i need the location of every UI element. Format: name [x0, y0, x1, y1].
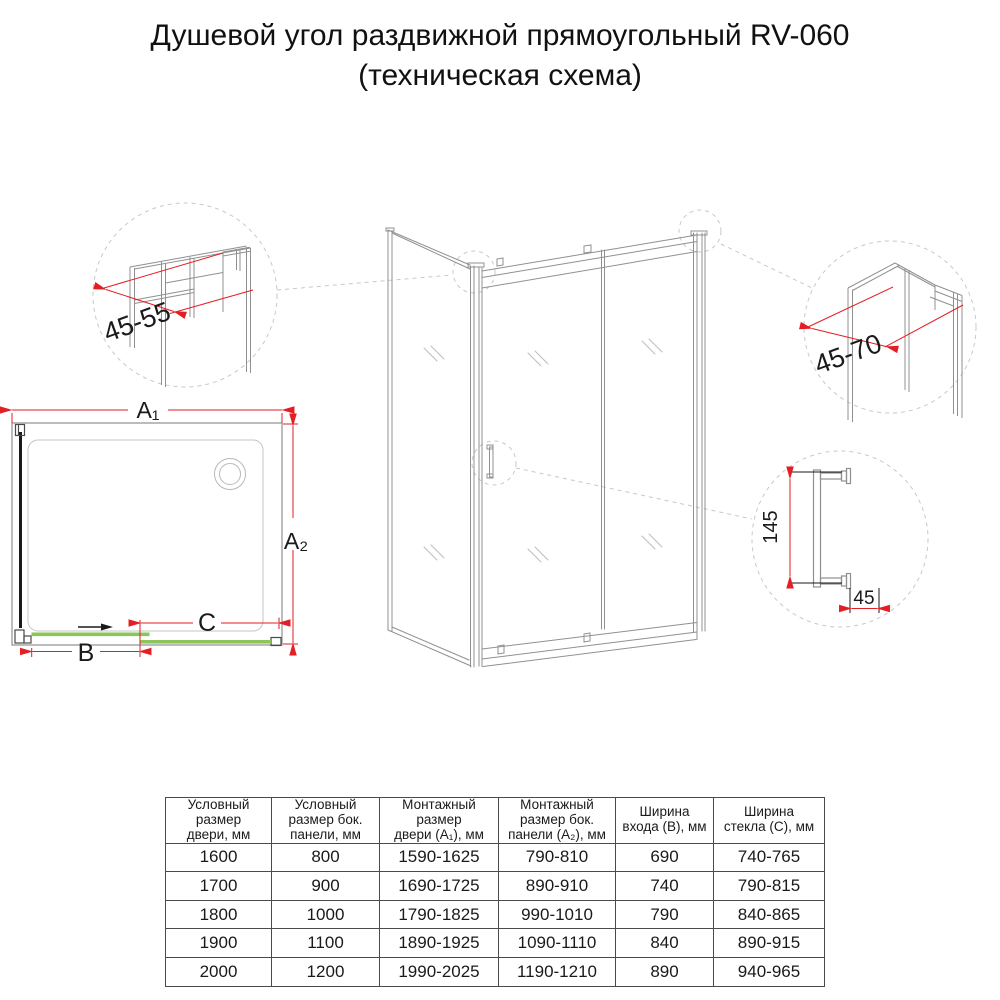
table-cell: 840-865 — [714, 900, 825, 929]
table-cell: 1990-2025 — [380, 957, 499, 986]
column-header-door-size: Условный размер двери, мм — [166, 798, 272, 844]
table-header-row: Условный размер двери, мм Условный разме… — [166, 798, 825, 844]
column-header-side-panel-size: Условный размер бок. панели, мм — [272, 798, 380, 844]
leader-handle — [516, 468, 752, 519]
dim-label-handle-height: 145 — [760, 510, 782, 543]
dim-label-c: C — [198, 609, 216, 637]
top-roller-1 — [497, 258, 503, 266]
table-cell: 1590-1625 — [380, 843, 499, 872]
leader-right-profile — [721, 244, 812, 288]
table-cell: 740 — [616, 872, 714, 901]
table-cell: 1800 — [166, 900, 272, 929]
table-cell: 1900 — [166, 929, 272, 958]
table-cell: 1200 — [272, 957, 380, 986]
table-cell: 690 — [616, 843, 714, 872]
bottom-roller-2 — [584, 633, 590, 642]
door-end-profile — [271, 638, 281, 646]
table-cell: 1600 — [166, 843, 272, 872]
plan-outer-wall — [12, 423, 282, 645]
top-roller-2 — [584, 245, 591, 253]
table-cell: 740-765 — [714, 843, 825, 872]
table-cell: 890-915 — [714, 929, 825, 958]
table-cell: 900 — [272, 872, 380, 901]
table-cell: 1100 — [272, 929, 380, 958]
wall-profile-bottom-foot — [24, 636, 31, 643]
table-row: 1700 900 1690-1725 890-910 740 790-815 — [166, 872, 825, 901]
drain-circle-inner — [220, 464, 241, 485]
table-row: 1600 800 1590-1625 790-810 690 740-765 — [166, 843, 825, 872]
table-row: 1800 1000 1790-1825 990-1010 790 840-865 — [166, 900, 825, 929]
left-profile-detail: 45-55 — [93, 203, 277, 387]
detail-circle-left — [93, 203, 277, 387]
handle-drawing — [814, 469, 851, 589]
leader-lines — [277, 210, 812, 519]
plan-dimensions — [12, 410, 298, 657]
table-cell: 1790-1825 — [380, 900, 499, 929]
leader-left-profile — [277, 275, 452, 290]
dim-label-b: B — [78, 639, 95, 667]
column-header-glass-width: Ширина стекла (С), мм — [714, 798, 825, 844]
table-cell: 890 — [616, 957, 714, 986]
plan-view: A₁ A₂ B C — [12, 397, 308, 667]
table-cell: 840 — [616, 929, 714, 958]
dim-label-a2: A₂ — [284, 528, 308, 554]
table-cell: 890-910 — [499, 872, 616, 901]
door-handle-iso — [487, 445, 493, 478]
table-cell: 940-965 — [714, 957, 825, 986]
shower-tray — [28, 440, 263, 631]
wall-profile-bottom — [15, 630, 24, 643]
column-header-entry-width: Ширина входа (В), мм — [616, 798, 714, 844]
right-profile-detail: 45-70 — [804, 241, 976, 422]
table-cell: 1090-1110 — [499, 929, 616, 958]
column-header-panel-mount-size: Монтажный размер бок. панели (А₂), мм — [499, 798, 616, 844]
table-cell: 790-815 — [714, 872, 825, 901]
detail-circle-right — [804, 241, 976, 413]
table-cell: 800 — [272, 843, 380, 872]
handle-detail: 145 45 — [752, 451, 928, 627]
table-cell: 2000 — [166, 957, 272, 986]
column-header-door-mount-size: Монтажный размер двери (А₁), мм — [380, 798, 499, 844]
glass-reflections — [424, 339, 662, 562]
size-table: Условный размер двери, мм Условный разме… — [165, 797, 825, 987]
fixed-door-panel — [140, 640, 271, 644]
table-cell: 1000 — [272, 900, 380, 929]
dim-label-handle-depth: 45 — [853, 588, 874, 609]
dim-label-left-profile: 45-55 — [99, 296, 174, 348]
table-row: 1900 1100 1890-1925 1090-1110 840 890-91… — [166, 929, 825, 958]
table-cell: 790-810 — [499, 843, 616, 872]
table-cell: 1700 — [166, 872, 272, 901]
sliding-door-panel — [32, 633, 150, 637]
table-cell: 990-1010 — [499, 900, 616, 929]
isometric-view — [386, 228, 707, 667]
table-cell: 1190-1210 — [499, 957, 616, 986]
table-cell: 1690-1725 — [380, 872, 499, 901]
technical-drawing-canvas: A₁ A₂ B C 45-55 — [0, 0, 1000, 790]
table-cell: 1890-1925 — [380, 929, 499, 958]
table-cell: 790 — [616, 900, 714, 929]
table-row: 2000 1200 1990-2025 1190-1210 890 940-96… — [166, 957, 825, 986]
dim-label-a1: A₁ — [136, 397, 159, 423]
